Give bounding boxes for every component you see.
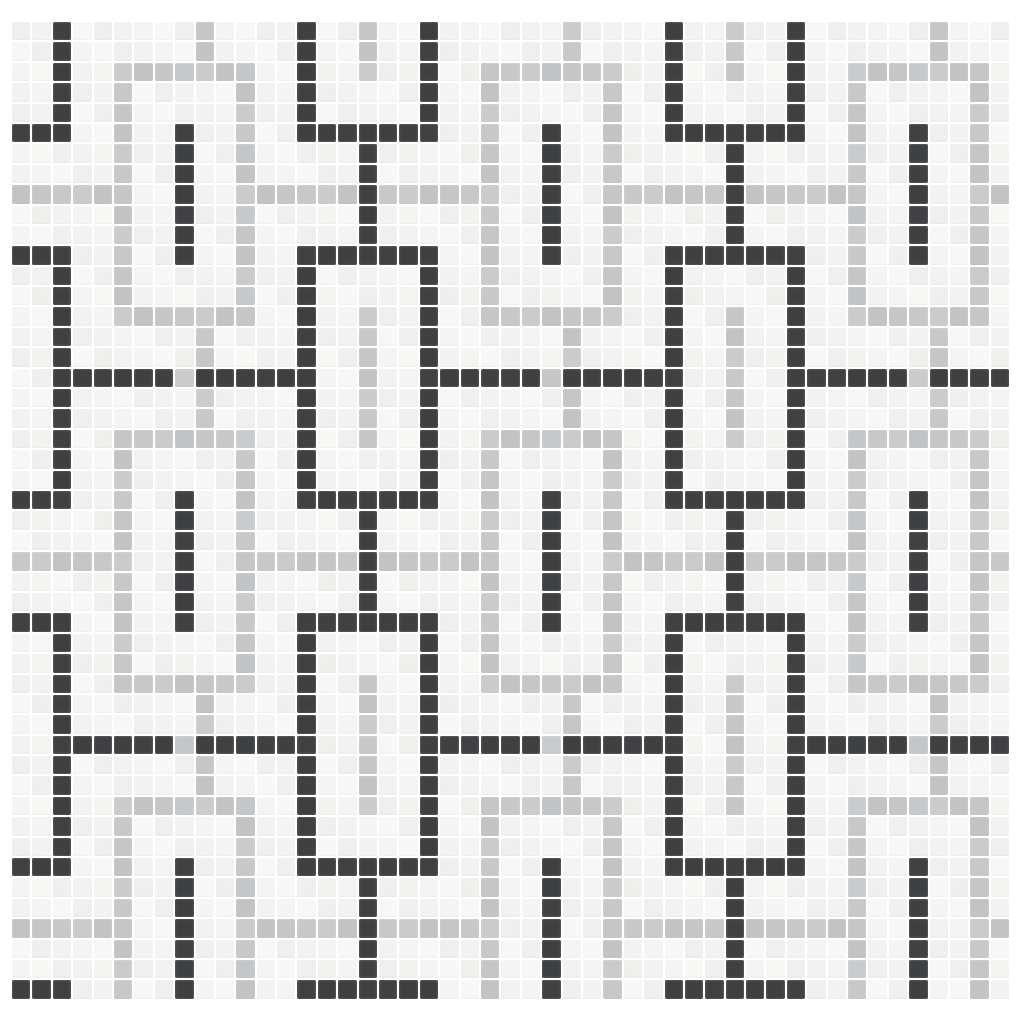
- tile: [440, 695, 458, 713]
- tile: [807, 471, 825, 489]
- tile: [766, 878, 784, 896]
- tile: [359, 267, 377, 285]
- tile: [807, 980, 825, 998]
- tile: [807, 226, 825, 244]
- tile: [726, 940, 744, 958]
- tile: [705, 369, 723, 387]
- tile: [746, 858, 764, 876]
- tile: [522, 817, 540, 835]
- tile: [889, 307, 907, 325]
- tile: [522, 573, 540, 591]
- tile: [950, 511, 968, 529]
- tile: [522, 430, 540, 448]
- tile: [828, 838, 846, 856]
- tile: [32, 980, 50, 998]
- tile: [216, 960, 234, 978]
- tile: [501, 654, 519, 672]
- tile: [665, 104, 683, 122]
- tile: [746, 675, 764, 693]
- tile: [583, 960, 601, 978]
- tile: [196, 246, 214, 264]
- tile: [603, 838, 621, 856]
- tile: [359, 42, 377, 60]
- tile: [868, 287, 886, 305]
- tile: [889, 573, 907, 591]
- tile: [950, 838, 968, 856]
- tile: [868, 940, 886, 958]
- tile: [644, 124, 662, 142]
- tile: [196, 878, 214, 896]
- tile: [787, 206, 805, 224]
- tile: [236, 22, 254, 40]
- tile: [583, 307, 601, 325]
- tile: [909, 348, 927, 366]
- tile: [53, 206, 71, 224]
- mosaic-pattern-image: [0, 0, 1024, 1024]
- tile: [440, 899, 458, 917]
- tile: [970, 593, 988, 611]
- tile: [277, 980, 295, 998]
- tile: [114, 695, 132, 713]
- tile: [583, 715, 601, 733]
- tile: [726, 328, 744, 346]
- tile: [297, 573, 315, 591]
- tile: [807, 675, 825, 693]
- tile: [868, 858, 886, 876]
- tile: [501, 776, 519, 794]
- tile: [787, 695, 805, 713]
- tile: [685, 776, 703, 794]
- tile: [501, 960, 519, 978]
- tile: [807, 899, 825, 917]
- tile: [359, 756, 377, 774]
- tile: [196, 654, 214, 672]
- tile: [359, 22, 377, 40]
- tile: [542, 144, 560, 162]
- tile: [889, 369, 907, 387]
- tile: [277, 776, 295, 794]
- tile: [685, 552, 703, 570]
- tile: [685, 613, 703, 631]
- tile: [848, 593, 866, 611]
- tile: [338, 389, 356, 407]
- tile: [420, 940, 438, 958]
- tile: [359, 471, 377, 489]
- tile: [603, 22, 621, 40]
- tile: [644, 185, 662, 203]
- tile: [603, 776, 621, 794]
- tile: [12, 715, 30, 733]
- tile: [461, 22, 479, 40]
- tile: [970, 532, 988, 550]
- tile: [481, 226, 499, 244]
- tile: [114, 756, 132, 774]
- tile: [196, 552, 214, 570]
- tile: [685, 919, 703, 937]
- tile: [950, 593, 968, 611]
- tile: [868, 491, 886, 509]
- tile: [624, 736, 642, 754]
- tile: [32, 42, 50, 60]
- tile: [991, 878, 1009, 896]
- tile: [277, 144, 295, 162]
- tile: [746, 878, 764, 896]
- tile: [257, 42, 275, 60]
- tile: [542, 634, 560, 652]
- tile: [970, 695, 988, 713]
- tile: [53, 226, 71, 244]
- tile: [991, 838, 1009, 856]
- tile: [624, 165, 642, 183]
- tile: [155, 226, 173, 244]
- tile: [155, 83, 173, 101]
- tile: [461, 654, 479, 672]
- tile: [685, 63, 703, 81]
- tile: [787, 246, 805, 264]
- tile: [868, 654, 886, 672]
- tile: [889, 226, 907, 244]
- tile: [828, 83, 846, 101]
- tile: [277, 226, 295, 244]
- tile: [522, 980, 540, 998]
- tile: [297, 736, 315, 754]
- tile: [277, 307, 295, 325]
- tile: [134, 960, 152, 978]
- tile: [379, 634, 397, 652]
- tile: [338, 348, 356, 366]
- tile: [236, 226, 254, 244]
- tile: [868, 899, 886, 917]
- tile: [420, 654, 438, 672]
- tile: [766, 634, 784, 652]
- tile: [624, 491, 642, 509]
- tile: [644, 450, 662, 468]
- tile: [155, 511, 173, 529]
- tile: [665, 22, 683, 40]
- tile: [379, 226, 397, 244]
- tile: [277, 552, 295, 570]
- tile: [603, 307, 621, 325]
- tile: [53, 307, 71, 325]
- tile: [930, 940, 948, 958]
- tile: [950, 389, 968, 407]
- tile: [461, 878, 479, 896]
- tile: [32, 776, 50, 794]
- tile: [257, 287, 275, 305]
- tile: [440, 185, 458, 203]
- tile: [563, 960, 581, 978]
- tile: [970, 246, 988, 264]
- tile: [73, 389, 91, 407]
- tile: [359, 613, 377, 631]
- tile: [970, 226, 988, 244]
- tile: [685, 104, 703, 122]
- tile: [216, 63, 234, 81]
- tile: [522, 471, 540, 489]
- tile: [563, 83, 581, 101]
- tile: [175, 246, 193, 264]
- tile: [175, 797, 193, 815]
- tile: [665, 348, 683, 366]
- tile: [216, 838, 234, 856]
- tile: [644, 144, 662, 162]
- tile: [624, 980, 642, 998]
- tile: [848, 675, 866, 693]
- tile: [950, 491, 968, 509]
- tile: [12, 83, 30, 101]
- tile: [399, 532, 417, 550]
- tile: [991, 144, 1009, 162]
- tile: [399, 715, 417, 733]
- tile: [909, 165, 927, 183]
- tile: [94, 430, 112, 448]
- tile: [440, 22, 458, 40]
- tile: [746, 22, 764, 40]
- tile: [155, 450, 173, 468]
- tile: [73, 756, 91, 774]
- tile: [73, 104, 91, 122]
- tile: [175, 63, 193, 81]
- tile: [909, 511, 927, 529]
- tile: [665, 980, 683, 998]
- tile: [481, 206, 499, 224]
- tile: [297, 307, 315, 325]
- tile: [379, 695, 397, 713]
- tile: [277, 797, 295, 815]
- tile: [318, 980, 336, 998]
- tile: [12, 471, 30, 489]
- tile: [175, 409, 193, 427]
- tile: [848, 246, 866, 264]
- tile: [155, 838, 173, 856]
- tile: [277, 83, 295, 101]
- tile: [685, 226, 703, 244]
- tile: [930, 532, 948, 550]
- tile: [909, 206, 927, 224]
- tile: [624, 695, 642, 713]
- tile: [196, 226, 214, 244]
- tile: [73, 287, 91, 305]
- tile: [338, 899, 356, 917]
- tile: [807, 940, 825, 958]
- tile: [705, 899, 723, 917]
- tile: [807, 715, 825, 733]
- tile: [501, 369, 519, 387]
- tile: [196, 573, 214, 591]
- tile: [563, 450, 581, 468]
- tile: [134, 593, 152, 611]
- tile: [807, 430, 825, 448]
- tile: [257, 919, 275, 937]
- tile: [685, 389, 703, 407]
- tile: [828, 226, 846, 244]
- tile: [53, 328, 71, 346]
- tile: [705, 858, 723, 876]
- tile: [501, 206, 519, 224]
- tile: [522, 124, 540, 142]
- tile: [889, 450, 907, 468]
- tile: [909, 756, 927, 774]
- tile: [175, 613, 193, 631]
- tile: [236, 246, 254, 264]
- tile: [277, 613, 295, 631]
- tile: [665, 83, 683, 101]
- tile: [705, 838, 723, 856]
- tile: [807, 573, 825, 591]
- tile: [991, 532, 1009, 550]
- tile: [196, 409, 214, 427]
- tile: [665, 42, 683, 60]
- tile: [889, 797, 907, 815]
- tile: [399, 369, 417, 387]
- tile: [277, 878, 295, 896]
- tile: [970, 83, 988, 101]
- tile: [522, 328, 540, 346]
- tile: [970, 389, 988, 407]
- tile: [12, 63, 30, 81]
- tile: [94, 165, 112, 183]
- tile: [216, 695, 234, 713]
- tile: [399, 389, 417, 407]
- tile: [73, 715, 91, 733]
- tile: [828, 511, 846, 529]
- tile: [32, 960, 50, 978]
- tile: [216, 450, 234, 468]
- tile: [970, 797, 988, 815]
- tile: [236, 838, 254, 856]
- tile: [318, 185, 336, 203]
- tile: [114, 552, 132, 570]
- tile: [665, 960, 683, 978]
- tile: [930, 267, 948, 285]
- tile: [970, 42, 988, 60]
- tile: [134, 450, 152, 468]
- tile: [359, 899, 377, 917]
- tile: [440, 144, 458, 162]
- tile: [297, 838, 315, 856]
- tile: [644, 675, 662, 693]
- tile: [379, 960, 397, 978]
- tile: [644, 573, 662, 591]
- tile: [420, 899, 438, 917]
- tile: [379, 491, 397, 509]
- tile: [889, 206, 907, 224]
- tile: [583, 695, 601, 713]
- tile: [73, 430, 91, 448]
- tile: [440, 307, 458, 325]
- tile: [766, 797, 784, 815]
- tile: [522, 899, 540, 917]
- tile: [440, 552, 458, 570]
- tile: [603, 267, 621, 285]
- tile: [787, 328, 805, 346]
- tile: [889, 430, 907, 448]
- tile: [542, 185, 560, 203]
- tile: [12, 878, 30, 896]
- tile: [155, 369, 173, 387]
- tile: [889, 980, 907, 998]
- tile: [155, 63, 173, 81]
- tile: [359, 63, 377, 81]
- tile: [94, 144, 112, 162]
- tile: [379, 267, 397, 285]
- tile: [196, 736, 214, 754]
- tile: [746, 491, 764, 509]
- tile: [889, 817, 907, 835]
- tile: [685, 695, 703, 713]
- tile: [705, 797, 723, 815]
- tile: [379, 756, 397, 774]
- tile: [909, 797, 927, 815]
- tile: [461, 960, 479, 978]
- tile: [665, 654, 683, 672]
- tile: [868, 22, 886, 40]
- tile: [461, 165, 479, 183]
- tile: [991, 104, 1009, 122]
- tile: [379, 328, 397, 346]
- tile: [583, 940, 601, 958]
- tile: [848, 532, 866, 550]
- tile: [359, 919, 377, 937]
- tile: [440, 450, 458, 468]
- tile: [297, 22, 315, 40]
- tile: [481, 104, 499, 122]
- tile: [420, 144, 438, 162]
- tile: [481, 348, 499, 366]
- tile: [318, 878, 336, 896]
- tile: [73, 940, 91, 958]
- tile: [175, 532, 193, 550]
- tile: [318, 348, 336, 366]
- tile: [889, 124, 907, 142]
- tile: [338, 532, 356, 550]
- tile: [134, 206, 152, 224]
- tile: [624, 409, 642, 427]
- tile: [787, 919, 805, 937]
- tile: [950, 471, 968, 489]
- tile: [542, 348, 560, 366]
- tile: [196, 22, 214, 40]
- tile: [807, 185, 825, 203]
- tile: [746, 63, 764, 81]
- tile: [563, 613, 581, 631]
- tile: [94, 797, 112, 815]
- tile: [542, 756, 560, 774]
- tile: [705, 430, 723, 448]
- tile: [379, 878, 397, 896]
- tile: [114, 83, 132, 101]
- tile: [930, 776, 948, 794]
- tile: [257, 124, 275, 142]
- tile: [399, 858, 417, 876]
- tile: [32, 899, 50, 917]
- tile: [73, 878, 91, 896]
- tile: [909, 83, 927, 101]
- tile: [134, 287, 152, 305]
- tile: [644, 634, 662, 652]
- tile: [726, 593, 744, 611]
- tile: [73, 552, 91, 570]
- tile: [420, 185, 438, 203]
- tile: [644, 511, 662, 529]
- tile: [114, 42, 132, 60]
- tile: [53, 858, 71, 876]
- tile: [583, 797, 601, 815]
- tile: [196, 63, 214, 81]
- tile: [665, 940, 683, 958]
- tile: [216, 124, 234, 142]
- tile: [624, 511, 642, 529]
